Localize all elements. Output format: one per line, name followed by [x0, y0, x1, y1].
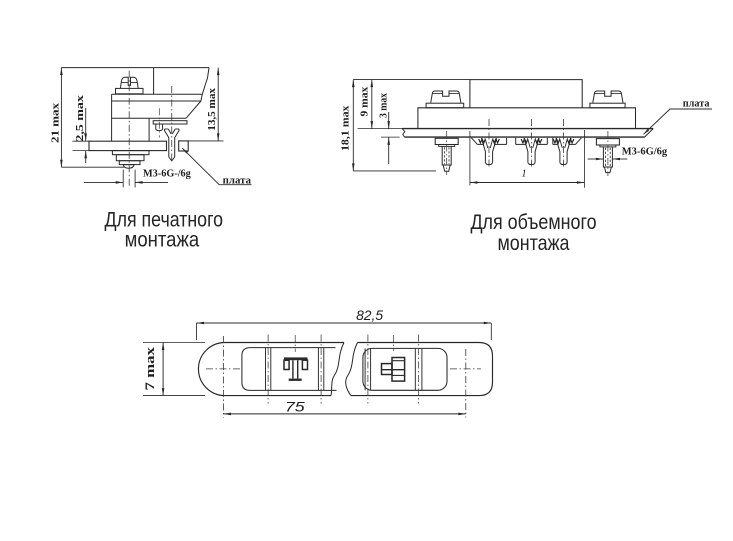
svg-text:21 max: 21 max [51, 102, 62, 143]
svg-text:1: 1 [521, 169, 526, 180]
svg-text:9 max: 9 max [360, 86, 371, 117]
svg-text:18,1 max: 18,1 max [341, 105, 352, 151]
svg-text:Для объемного: Для объемного [470, 211, 596, 234]
svg-text:3 max: 3 max [378, 92, 389, 118]
svg-text:монтажа: монтажа [125, 229, 200, 252]
svg-text:M3-6G/6g: M3-6G/6g [622, 146, 667, 157]
svg-text:2,5 max: 2,5 max [75, 94, 86, 141]
svg-text:M3-6G-/6g: M3-6G-/6g [143, 168, 191, 179]
svg-text:13,5 max: 13,5 max [207, 87, 218, 130]
svg-text:монтажа: монтажа [498, 232, 570, 255]
svg-text:75: 75 [285, 399, 305, 415]
svg-text:плата: плата [683, 98, 710, 109]
svg-text:82,5: 82,5 [356, 307, 383, 323]
svg-text:7 max: 7 max [143, 346, 157, 390]
svg-text:плата: плата [223, 175, 252, 186]
